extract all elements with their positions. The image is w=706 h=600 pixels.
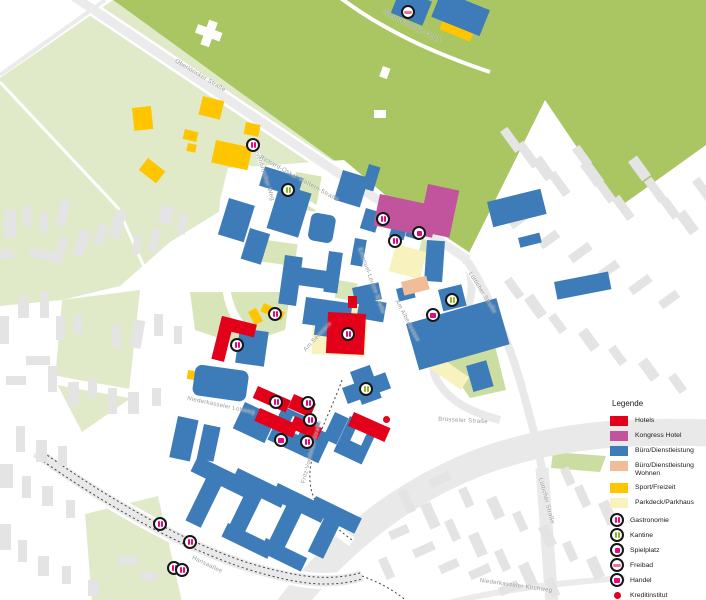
legend-point-row: Freibad — [610, 558, 706, 572]
legend-icon-box — [610, 513, 624, 527]
legend-color-swatch — [610, 498, 628, 508]
legend-area-row: Hotels — [610, 416, 706, 426]
gastronomie-icon — [300, 435, 314, 449]
gastronomie-icon — [153, 517, 167, 531]
legend-color-swatch — [610, 483, 628, 493]
legend-icon-box — [610, 573, 624, 587]
freibad-icon — [610, 558, 624, 572]
kantine-icon — [281, 183, 295, 197]
legend-label: Sport/Freizeit — [635, 483, 675, 492]
gastronomie-icon — [246, 138, 260, 152]
legend-points: GastronomieKantineSpielplatzFreibadHande… — [610, 513, 706, 600]
legend-icon-box — [610, 528, 624, 542]
spielplatz-icon — [412, 226, 426, 240]
gastronomie-icon — [341, 327, 355, 341]
legend-color-swatch — [610, 461, 628, 471]
legend-area-row: Sport/Freizeit — [610, 483, 706, 493]
legend-label: Kantine — [630, 532, 653, 539]
legend-label: Kongress Hotel — [635, 431, 681, 440]
legend-icon-box — [610, 558, 624, 572]
legend-icon-box — [610, 543, 624, 557]
legend-label: Freibad — [630, 562, 653, 569]
freibad-icon — [401, 5, 415, 19]
legend-label: Büro/Dienstleistung — [635, 446, 694, 455]
legend-color-swatch — [610, 416, 628, 426]
gastronomie-icon — [268, 307, 282, 321]
legend-title: Legende — [612, 399, 706, 408]
legend-area-row: Parkdeck/Parkhaus — [610, 498, 706, 508]
legend-point-row: Kantine — [610, 528, 706, 542]
kreditinstitut-icon — [383, 416, 390, 423]
legend-color-swatch — [610, 446, 628, 456]
legend-point-row: Kreditinstitut — [610, 588, 706, 600]
kantine-icon — [359, 382, 373, 396]
gastronomie-icon — [269, 395, 283, 409]
site-map: Oberlöricker StraßeNiederkasseler DeichG… — [0, 0, 706, 600]
legend-point-row: Spielplatz — [610, 543, 706, 557]
legend-point-row: Handel — [610, 573, 706, 587]
legend-area-row: Kongress Hotel — [610, 431, 706, 441]
legend-icon-box — [610, 588, 624, 600]
kreditinstitut-icon — [347, 313, 354, 320]
legend-panel: Legende HotelsKongress HotelBüro/Dienstl… — [610, 399, 706, 600]
legend-area-row: Büro/Dienstleistung Wohnen — [610, 461, 706, 478]
legend-areas: HotelsKongress HotelBüro/DienstleistungB… — [610, 416, 706, 508]
legend-area-row: Büro/Dienstleistung — [610, 446, 706, 456]
legend-point-row: Gastronomie — [610, 513, 706, 527]
legend-label: Hotels — [635, 416, 654, 425]
legend-label: Spielplatz — [630, 547, 659, 554]
gastronomie-icon — [230, 338, 244, 352]
spielplatz-icon — [610, 543, 624, 557]
gastronomie-icon — [303, 413, 317, 427]
legend-color-swatch — [610, 431, 628, 441]
legend-label: Büro/Dienstleistung Wohnen — [635, 461, 706, 478]
gastronomie-icon — [301, 396, 315, 410]
legend-label: Gastronomie — [630, 517, 669, 524]
gastronomie-icon — [610, 513, 624, 527]
legend-label: Kreditinstitut — [630, 592, 667, 599]
handel-icon — [426, 308, 440, 322]
kantine-icon — [445, 293, 459, 307]
gastronomie-icon — [376, 212, 390, 226]
gastronomie-icon — [183, 535, 197, 549]
kreditinstitut-icon — [614, 592, 621, 599]
kantine-icon — [610, 528, 624, 542]
poi-layer — [0, 0, 706, 600]
legend-label: Handel — [630, 577, 652, 584]
handel-icon — [610, 573, 624, 587]
handel-icon — [274, 433, 288, 447]
gastronomie-icon — [388, 234, 402, 248]
gastronomie-icon — [175, 563, 189, 577]
legend-label: Parkdeck/Parkhaus — [635, 498, 694, 507]
